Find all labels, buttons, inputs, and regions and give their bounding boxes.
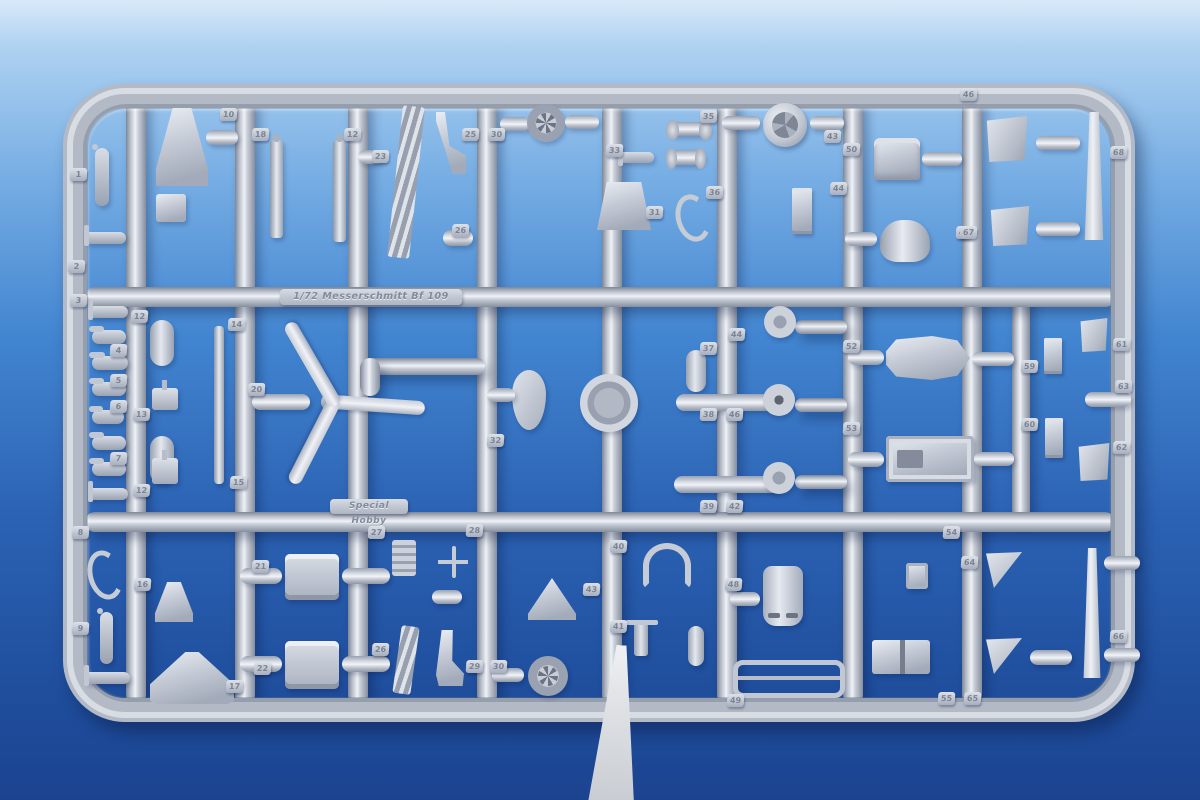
kit-name-plate: 1/72 Messerschmitt Bf 109 [280,289,462,305]
brand-plate: Special Hobby [330,499,408,514]
photo-background: 1/72 Messerschmitt Bf 109 Special Hobby … [0,0,1200,800]
sprue-frame [63,84,1135,722]
